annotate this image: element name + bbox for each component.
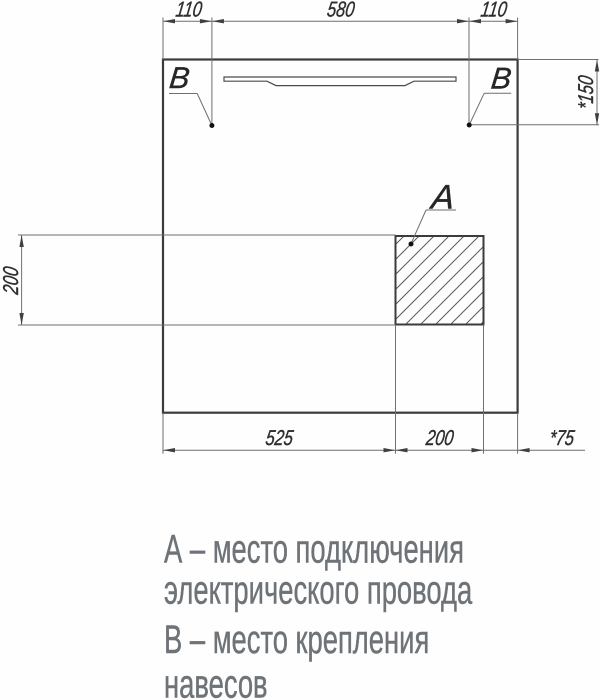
svg-text:*75: *75 bbox=[548, 427, 576, 450]
svg-text:электрического провода: электрического провода bbox=[164, 568, 473, 612]
svg-text:200: 200 bbox=[424, 427, 456, 450]
svg-text:A: A bbox=[428, 179, 457, 217]
svg-text:110: 110 bbox=[479, 0, 509, 22]
svg-text:200: 200 bbox=[0, 265, 23, 297]
svg-text:В – место крепления: В – место крепления bbox=[164, 618, 429, 662]
svg-text:110: 110 bbox=[174, 0, 204, 22]
svg-text:*150: *150 bbox=[575, 74, 598, 111]
svg-text:580: 580 bbox=[326, 0, 357, 22]
svg-text:525: 525 bbox=[264, 427, 295, 450]
svg-text:навесов: навесов bbox=[164, 662, 268, 700]
svg-text:А – место подключения: А – место подключения bbox=[164, 527, 464, 571]
svg-text:B: B bbox=[168, 62, 191, 95]
svg-text:B: B bbox=[490, 63, 513, 96]
